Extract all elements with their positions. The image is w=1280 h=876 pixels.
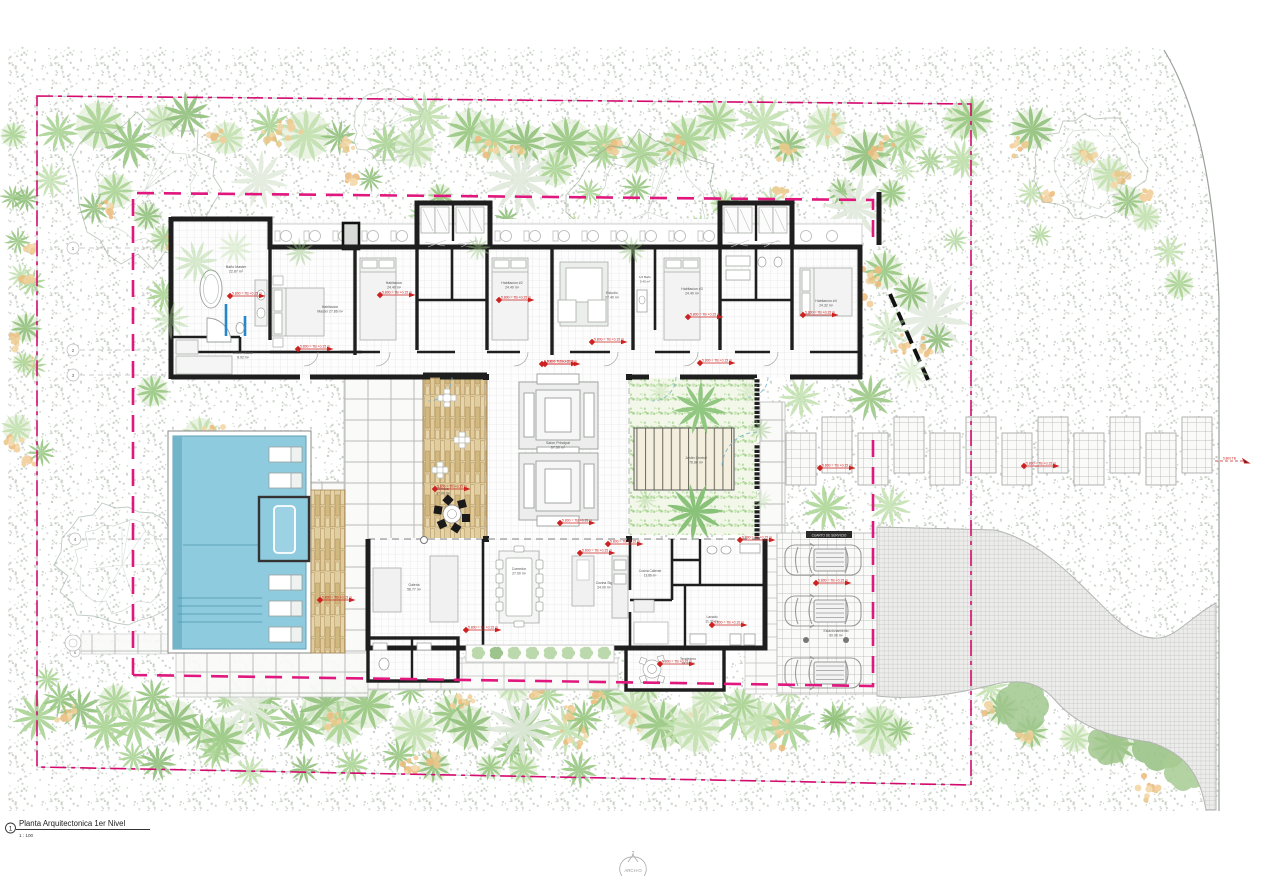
svg-text:Baño Master: Baño Master [226, 265, 247, 269]
svg-text:5.800 = TB +0.15 m: 5.800 = TB +0.15 m [610, 540, 640, 544]
svg-text:Habitacion #3: Habitacion #3 [681, 287, 702, 291]
svg-text:5.800 = TB +0.15 m: 5.800 = TB +0.15 m [662, 660, 692, 664]
svg-text:5.800 = TB +0.15 m: 5.800 = TB +0.15 m [322, 596, 352, 600]
svg-text:Lavado: Lavado [706, 615, 717, 619]
svg-text:Habitacion: Habitacion [322, 305, 339, 309]
svg-text:5.800 = TB +0.15 m: 5.800 = TB +0.15 m [382, 291, 412, 295]
svg-text:Comedor: Comedor [512, 567, 527, 571]
svg-text:Salon Principal: Salon Principal [546, 441, 570, 445]
svg-text:5.800 = TB +0.15 m: 5.800 = TB +0.15 m [818, 579, 848, 583]
svg-text:1 : 100: 1 : 100 [19, 833, 33, 838]
svg-text:5.800 = TB +0.15 m: 5.800 = TB +0.15 m [805, 311, 835, 315]
svg-text:24.40 m²: 24.40 m² [505, 286, 520, 290]
svg-text:Closet Master: Closet Master [233, 351, 255, 355]
svg-text:5.800 = TB +0.15 m: 5.800 = TB +0.15 m [544, 360, 574, 364]
svg-text:Estudio: Estudio [606, 291, 618, 295]
svg-text:2: 2 [72, 348, 75, 354]
svg-text:8.92 m²: 8.92 m² [237, 356, 249, 360]
svg-text:22.87 m²: 22.87 m² [229, 270, 244, 274]
svg-text:6: 6 [74, 651, 76, 655]
svg-text:5.800 = TB +0.15 m: 5.800 = TB +0.15 m [468, 626, 498, 630]
svg-text:Cocina Stg: Cocina Stg [596, 581, 613, 585]
svg-text:67.50 m²: 67.50 m² [551, 446, 566, 450]
svg-text:5.800 = TB +0.15 m: 5.800 = TB +0.15 m [702, 359, 732, 363]
svg-text:5.40 m²: 5.40 m² [640, 280, 650, 284]
svg-text:Habitacion #4: Habitacion #4 [815, 299, 836, 303]
svg-text:5.800 = TB +0.15 m: 5.800 = TB +0.15 m [562, 519, 592, 523]
svg-text:24.32 m²: 24.32 m² [819, 304, 834, 308]
svg-text:Habitacion #2: Habitacion #2 [501, 281, 522, 285]
svg-text:37.00 m²: 37.00 m² [436, 492, 450, 496]
svg-text:1: 1 [72, 246, 75, 252]
svg-text:5.800 = TB +0.15 m: 5.800 = TB +0.15 m [582, 549, 612, 553]
svg-text:5.800 = TB +0.15 m: 5.800 = TB +0.15 m [232, 292, 262, 296]
svg-text:Estacionamiento: Estacionamiento [823, 629, 848, 633]
svg-text:56.77 m²: 56.77 m² [407, 588, 422, 592]
svg-text:5.800 = TB +0.15 m: 5.800 = TB +0.15 m [1026, 462, 1056, 466]
svg-text:5.800 = TB +0.15 m: 5.800 = TB +0.15 m [690, 313, 720, 317]
svg-text:24.00 m²: 24.00 m² [597, 586, 611, 590]
svg-text:60.06 m²: 60.06 m² [829, 634, 843, 638]
svg-text:24.40 m²: 24.40 m² [387, 286, 402, 290]
svg-text:CUARTO DE SERVICIO: CUARTO DE SERVICIO [812, 533, 847, 537]
svg-text:Master 27.86 m²: Master 27.86 m² [317, 310, 343, 314]
svg-text:3: 3 [72, 373, 75, 379]
svg-text:5.800 = TB +0.15 m: 5.800 = TB +0.15 m [594, 338, 624, 342]
svg-text:27.00 m²: 27.00 m² [512, 572, 527, 576]
svg-text:5.800 = TB +0.15 m: 5.800 = TB +0.15 m [437, 485, 467, 489]
svg-text:Galeria: Galeria [408, 583, 419, 587]
svg-text:5.800 = TB +0.15 m: 5.800 = TB +0.15 m [714, 621, 744, 625]
svg-text:4: 4 [74, 537, 77, 543]
svg-text:13.86 m²: 13.86 m² [644, 574, 657, 578]
svg-text:24.40 m²: 24.40 m² [685, 292, 700, 296]
svg-text:5.800 = TB +0.15 m: 5.800 = TB +0.15 m [822, 464, 852, 468]
svg-text:76.66 m²: 76.66 m² [689, 461, 704, 465]
svg-text:1/2 Baño: 1/2 Baño [639, 275, 651, 279]
svg-text:Habitacion: Habitacion [386, 281, 403, 285]
svg-text:ARCH-O: ARCH-O [624, 868, 642, 873]
svg-text:Jardin Central: Jardin Central [685, 456, 707, 460]
svg-text:27.40 m²: 27.40 m² [605, 296, 620, 300]
svg-text:5.800 TB: 5.800 TB [1223, 457, 1236, 461]
svg-text:5.800 = TB +0.15 m: 5.800 = TB +0.15 m [501, 296, 531, 300]
svg-text:Planta Arquitectonica 1er Nive: Planta Arquitectonica 1er Nivel [19, 819, 125, 828]
svg-text:Cocina Caliente: Cocina Caliente [639, 569, 662, 573]
svg-text:5.800 = TB +0.15 m: 5.800 = TB +0.15 m [300, 345, 330, 349]
svg-text:1: 1 [9, 826, 13, 833]
svg-text:5.800 = TB +0.15 m: 5.800 = TB +0.15 m [742, 536, 772, 540]
